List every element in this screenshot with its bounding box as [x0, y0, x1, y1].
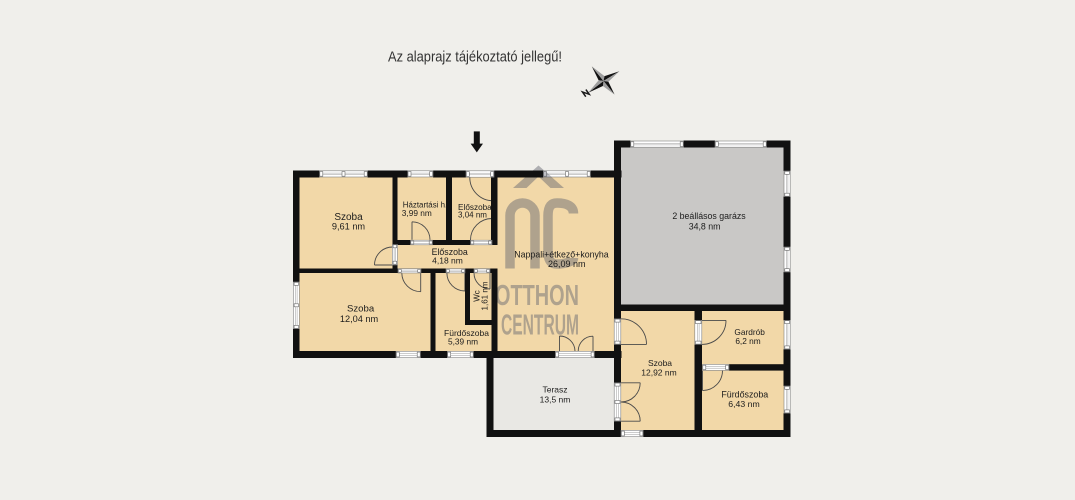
svg-text:CENTRUM: CENTRUM [501, 310, 579, 342]
svg-text:4,18 nm: 4,18 nm [432, 256, 463, 266]
svg-text:Fürdőszoba: Fürdőszoba [721, 389, 768, 399]
svg-text:5,39 nm: 5,39 nm [448, 336, 478, 346]
svg-text:34,8 nm: 34,8 nm [689, 222, 721, 232]
svg-text:Terasz: Terasz [542, 384, 567, 394]
svg-text:12,92 nm: 12,92 nm [641, 368, 676, 378]
svg-text:1,61 nm: 1,61 nm [481, 281, 490, 310]
svg-text:Szoba: Szoba [648, 358, 672, 368]
svg-text:Az alaprajz tájékoztató jelleg: Az alaprajz tájékoztató jellegű! [388, 48, 562, 65]
svg-text:26,09 nm: 26,09 nm [548, 259, 586, 269]
svg-text:13,5 nm: 13,5 nm [540, 394, 571, 404]
svg-text:OTTHON: OTTHON [495, 280, 579, 312]
svg-text:9,61 nm: 9,61 nm [332, 222, 366, 232]
svg-text:6,43 nm: 6,43 nm [728, 399, 759, 409]
svg-text:3,99 nm: 3,99 nm [402, 208, 432, 218]
svg-text:6,2 nm: 6,2 nm [735, 336, 760, 346]
svg-text:2 beállásos garázs: 2 beállásos garázs [672, 211, 746, 221]
svg-text:Nappali+étkező+konyha: Nappali+étkező+konyha [514, 249, 608, 259]
svg-text:3,04 nm: 3,04 nm [458, 210, 487, 219]
svg-text:12,04 nm: 12,04 nm [340, 314, 379, 324]
